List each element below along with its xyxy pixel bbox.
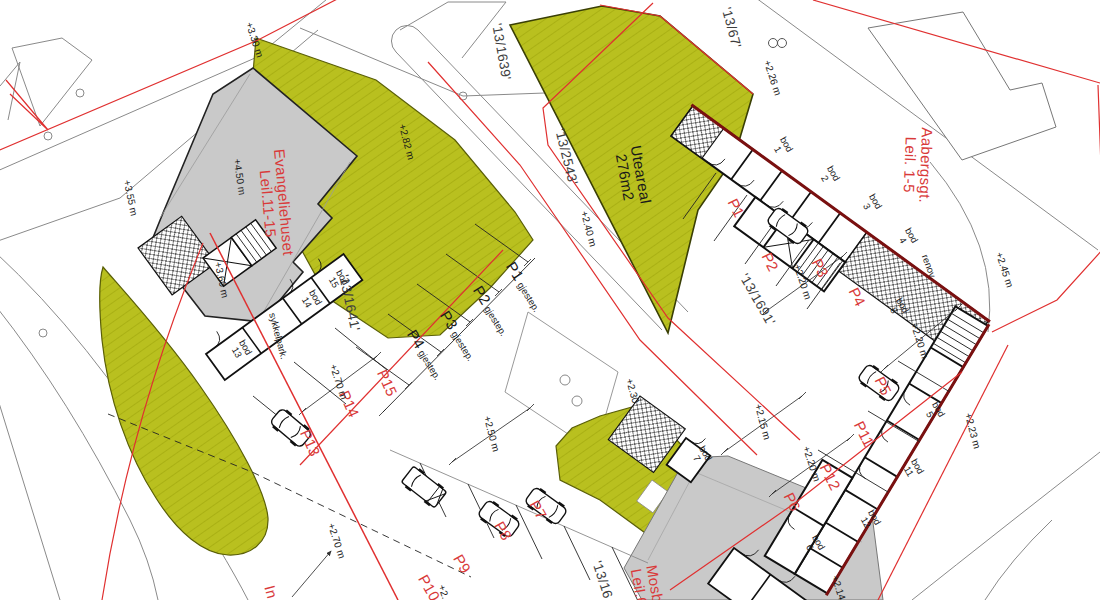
site-plan: '13/1639' '13/2543' '13/67' '13/1691' '1… (0, 0, 1100, 600)
building-label-aabergsgt: Aabergsgt.Leil. 1-5 (901, 127, 935, 204)
site-plan-drawing (0, 0, 1100, 600)
direction-arrow (292, 551, 331, 597)
